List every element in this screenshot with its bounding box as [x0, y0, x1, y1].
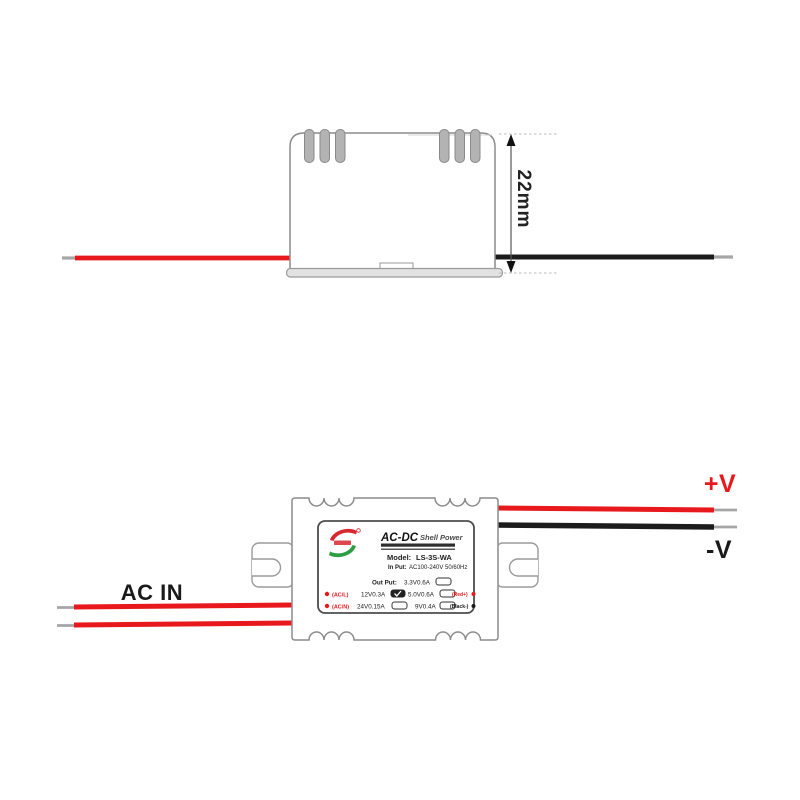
vent-slot: [305, 130, 315, 163]
height-dimension-label: 22mm: [513, 170, 534, 229]
model-label: Model:: [387, 553, 411, 562]
vent-slot: [440, 130, 450, 163]
option-24v: 24V0.15A: [357, 604, 385, 611]
option-3v3: 3.3V0.6A: [404, 580, 431, 587]
ac-wire-1: [74, 605, 292, 607]
v-minus-label: -V: [706, 536, 732, 564]
terminal-dot-acl: [325, 592, 329, 596]
mounting-tab-right: [496, 543, 538, 587]
title-rule-thin: [381, 549, 455, 550]
ac-in-label: AC IN: [121, 580, 183, 605]
top-view: AC-DC Shell Power Model: LS-3S-WA In Put…: [57, 470, 737, 640]
logo-brand-mark: [334, 541, 351, 546]
terminal-black-minus-label: (Black-): [450, 604, 469, 610]
ac-wire-2: [74, 623, 292, 625]
vent-slot: [471, 130, 481, 163]
label-title-suffix: Shell Power: [420, 533, 464, 542]
screw-slot: [252, 559, 281, 576]
terminal-acl-label: (AC/L): [332, 593, 349, 599]
terminal-acn-label: (AC/N): [332, 605, 349, 611]
checkbox-3v3: [436, 578, 451, 585]
title-rule-thick: [381, 544, 455, 547]
terminal-dot-black: [472, 604, 476, 608]
side-view: 22mm: [62, 130, 733, 278]
checkbox-24v: [392, 602, 407, 609]
diagram-canvas: 22mm: [0, 0, 800, 800]
option-9v: 9V0.4A: [415, 604, 436, 611]
output-label: Out Put:: [372, 580, 397, 587]
height-dimension: 22mm: [499, 134, 557, 273]
dc-negative-wire: [496, 525, 714, 527]
screw-slot: [510, 559, 539, 576]
mounting-tab-left: [252, 543, 294, 587]
dc-positive-wire: [496, 508, 714, 510]
terminal-dot-red: [472, 592, 476, 596]
model-value: LS-3S-WA: [416, 553, 452, 562]
input-value: AC100-240V 50/60Hz: [409, 565, 467, 571]
vent-slot: [455, 130, 465, 163]
product-label: AC-DC Shell Power Model: LS-3S-WA In Put…: [318, 521, 476, 613]
checkbox-fill: [391, 590, 405, 597]
checkbox-12v-checked: [391, 590, 405, 597]
product-illustration: 22mm: [0, 0, 800, 800]
vent-slot: [336, 130, 346, 163]
vent-slot: [320, 130, 330, 163]
terminal-red-plus-label: (Red+): [452, 592, 468, 598]
option-5v: 5.0V0.6A: [408, 592, 435, 599]
option-12v: 12V0.3A: [361, 592, 386, 599]
input-label: In Put:: [388, 565, 407, 571]
base-flange: [287, 269, 503, 278]
arrowhead-down-icon: [507, 261, 516, 273]
v-plus-label: +V: [704, 470, 736, 498]
label-title: AC-DC: [380, 532, 419, 544]
arrowhead-up-icon: [507, 134, 516, 146]
terminal-dot-acn: [325, 604, 329, 608]
